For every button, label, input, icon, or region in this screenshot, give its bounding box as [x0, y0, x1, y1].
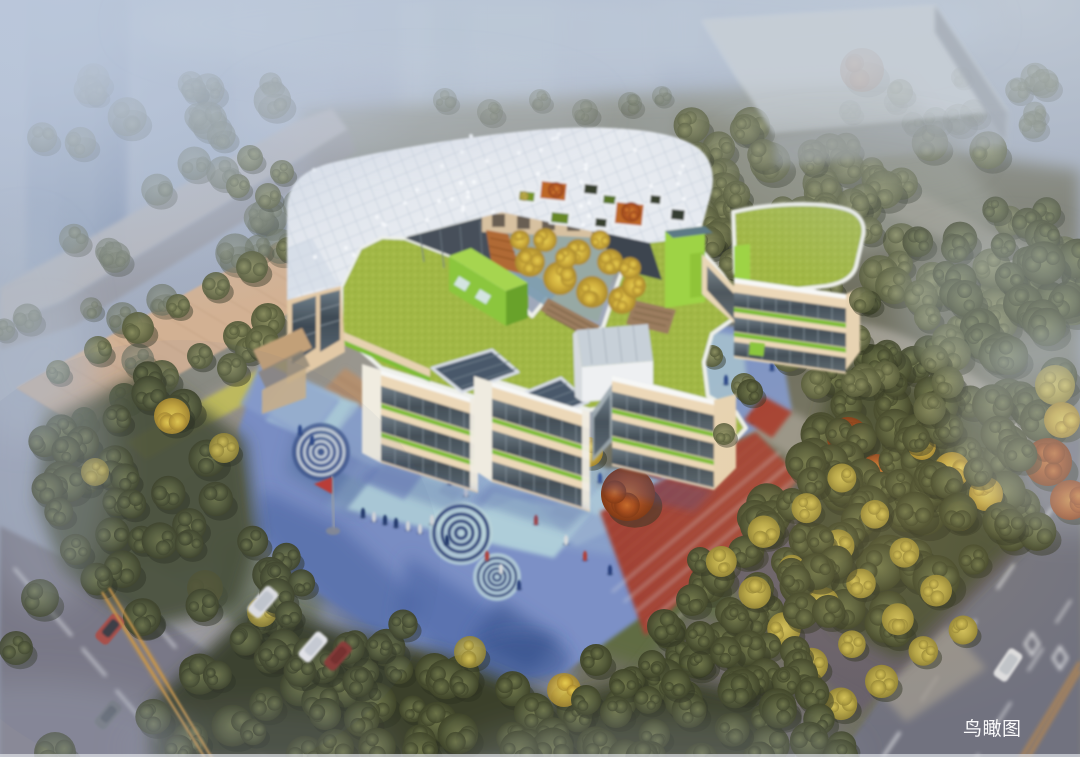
svg-text:鸟瞰图: 鸟瞰图 [963, 718, 1022, 740]
